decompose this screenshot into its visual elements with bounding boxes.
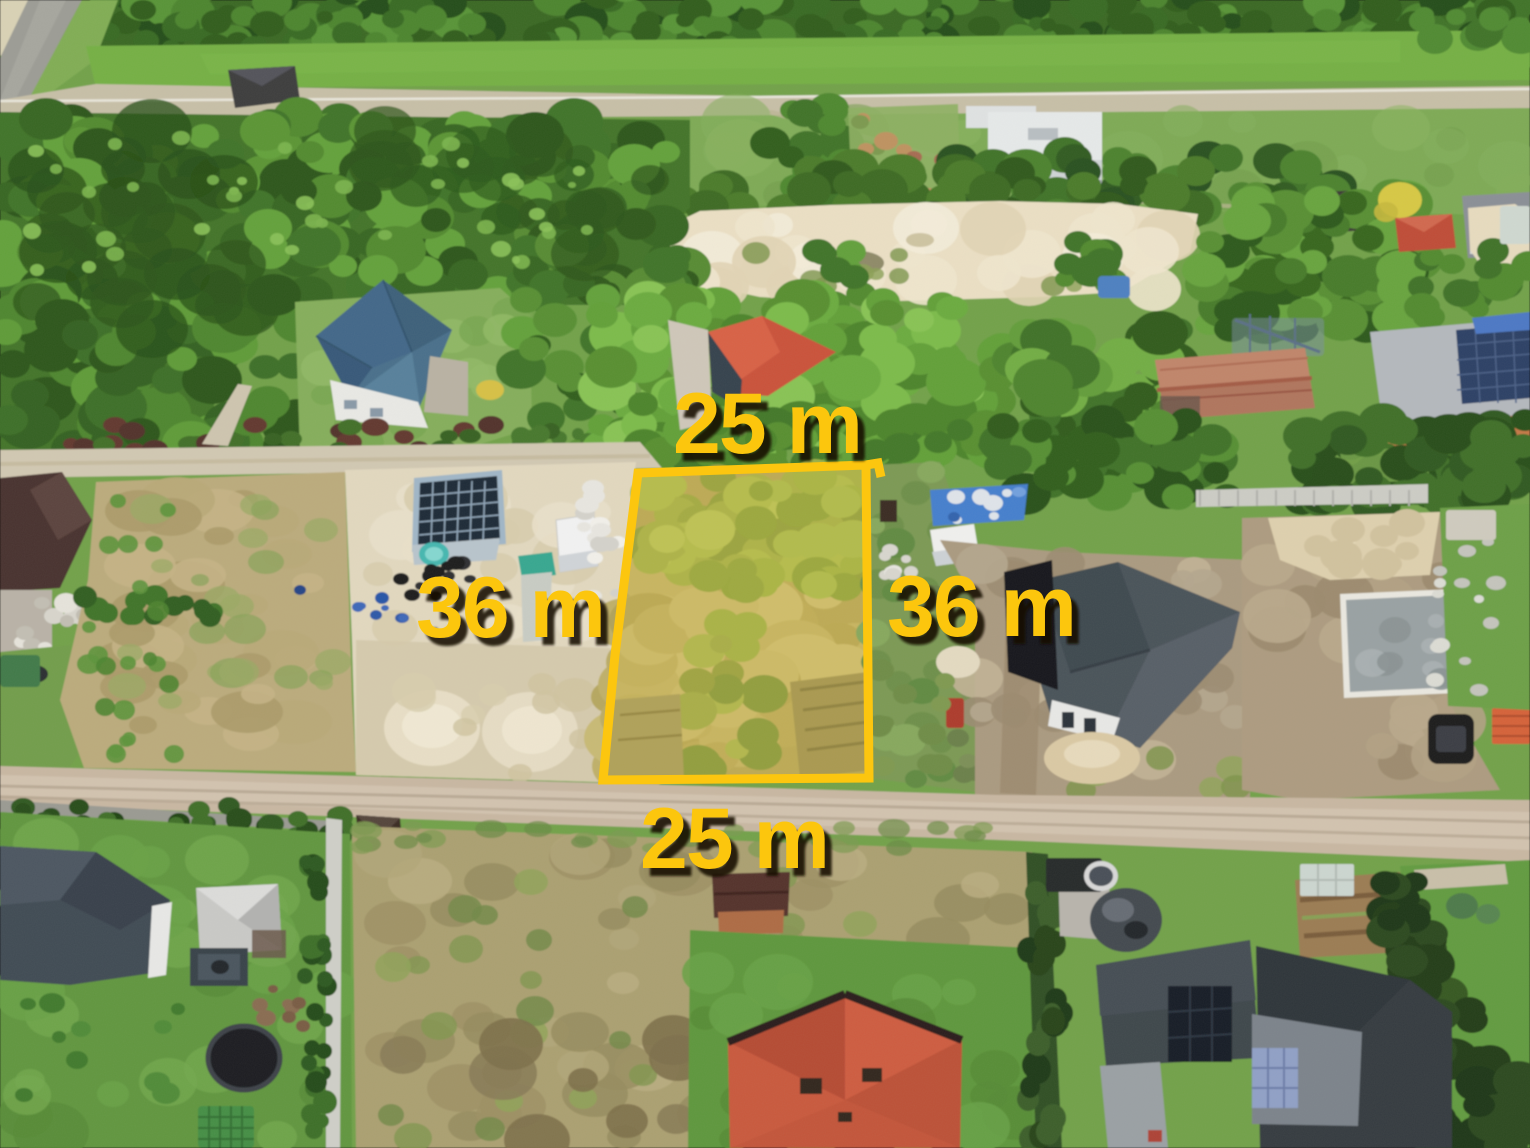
svg-text:36 m: 36 m	[887, 559, 1075, 655]
svg-text:25 m: 25 m	[640, 791, 828, 887]
svg-text:25 m: 25 m	[673, 376, 861, 472]
svg-text:36 m: 36 m	[416, 560, 604, 656]
